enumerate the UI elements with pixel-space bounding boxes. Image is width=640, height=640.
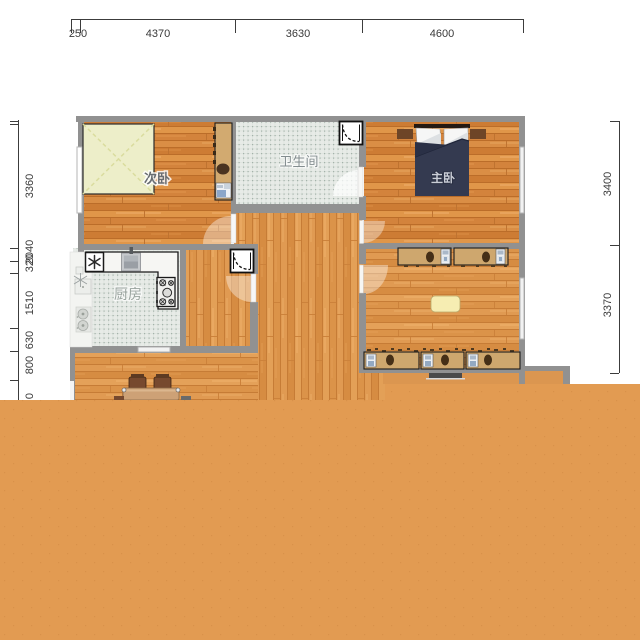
svg-text:3630: 3630 bbox=[286, 28, 310, 40]
svg-text:主卧: 主卧 bbox=[431, 170, 455, 185]
svg-text:1510: 1510 bbox=[24, 291, 36, 315]
svg-text:0: 0 bbox=[24, 393, 36, 399]
svg-text:630: 630 bbox=[24, 331, 36, 349]
svg-text:4600: 4600 bbox=[430, 28, 454, 40]
svg-text:3400: 3400 bbox=[602, 172, 614, 196]
svg-text:3360: 3360 bbox=[24, 174, 36, 198]
svg-text:次卧: 次卧 bbox=[144, 171, 170, 186]
svg-text:800: 800 bbox=[24, 356, 36, 374]
svg-text:3370: 3370 bbox=[602, 293, 614, 317]
svg-text:250: 250 bbox=[69, 28, 87, 40]
svg-text:卫生间: 卫生间 bbox=[279, 154, 318, 169]
svg-text:4370: 4370 bbox=[146, 28, 170, 40]
svg-text:320: 320 bbox=[24, 254, 36, 272]
svg-text:厨房: 厨房 bbox=[114, 286, 142, 302]
